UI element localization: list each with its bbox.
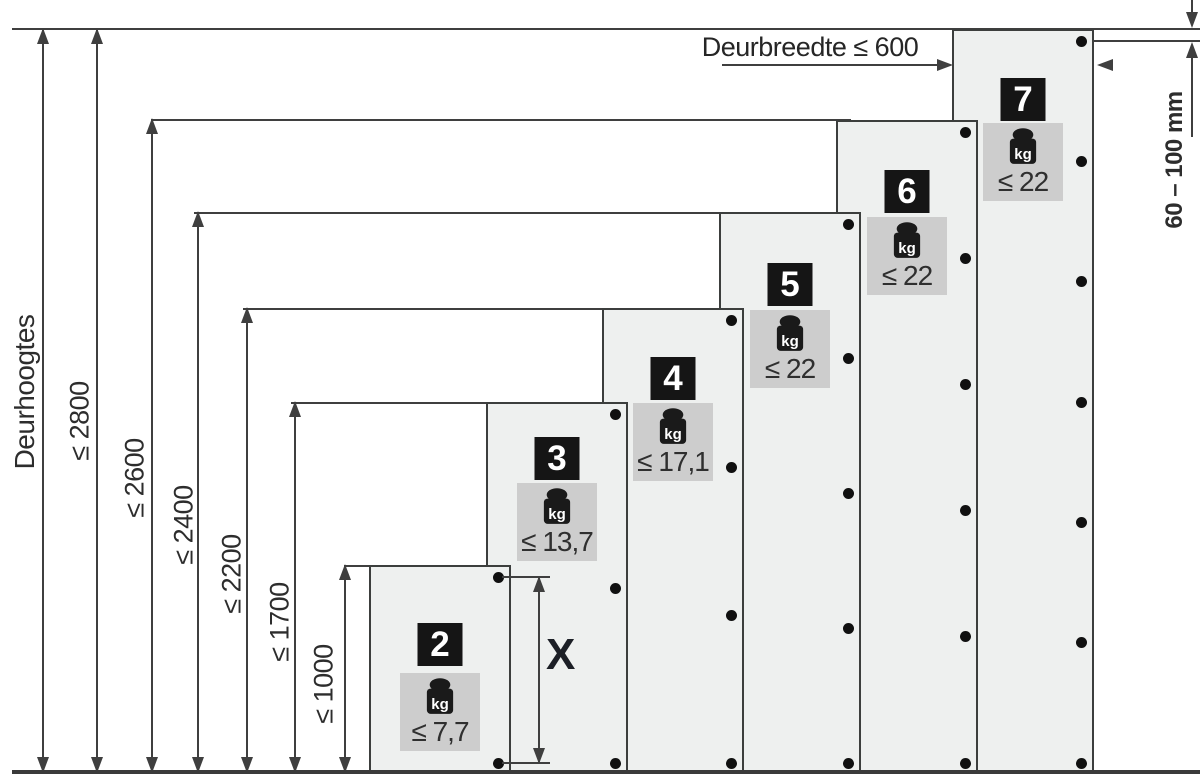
hinge-count-diagram: 2 kg ≤ 7,7 3 kg ≤ 13,7 4 kg: [0, 0, 1200, 778]
kg-weight-icon: kg: [1008, 128, 1038, 166]
hinge-dot: [1076, 276, 1087, 287]
ref-line-height-2600: [151, 119, 851, 121]
ref-line-height-2200: [243, 308, 663, 310]
weight-limit-box: kg ≤ 7,7: [400, 673, 480, 751]
hinge-dot: [726, 610, 737, 621]
door-number-plate: 4: [651, 357, 696, 400]
hinge-dot: [1076, 156, 1087, 167]
hinge-dot: [960, 758, 971, 769]
hinge-dot: [726, 758, 737, 769]
hinge-offset-dim-line-lower: [1191, 58, 1193, 137]
weight-limit-value: ≤ 22: [765, 355, 815, 383]
kg-weight-icon: kg: [775, 315, 805, 353]
door-number-plate: 3: [535, 437, 580, 480]
dim-line-deurhoogtes: [42, 29, 44, 772]
door-number-plate: 6: [885, 170, 930, 213]
weight-limit-box: kg ≤ 22: [983, 123, 1063, 201]
hinge-dot: [960, 379, 971, 390]
dim-line-2600: [151, 119, 153, 772]
height-label-2400: ≤ 2400: [169, 485, 200, 564]
hinge-dot: [726, 462, 737, 473]
weight-limit-box: kg ≤ 22: [750, 310, 830, 388]
hinge-offset-arrow-up-icon: [1186, 42, 1198, 58]
hinge-dot: [726, 315, 737, 326]
door-width-arrow-right-icon: [937, 59, 953, 71]
hinge-dot: [960, 253, 971, 264]
kg-unit-label: kg: [898, 240, 916, 257]
height-label-2200: ≤ 2200: [217, 534, 248, 613]
door-width-dim-line: [722, 64, 940, 66]
height-label-2800: ≤ 2800: [65, 381, 96, 460]
hinge-dot: [1076, 517, 1087, 528]
weight-limit-value: ≤ 13,7: [521, 528, 593, 556]
hinge-dot: [1076, 36, 1087, 47]
hinge-dot: [610, 758, 621, 769]
door-number-plate: 7: [1001, 78, 1046, 121]
height-label-1000: ≤ 1000: [309, 644, 340, 723]
hinge-dot: [1076, 758, 1087, 769]
dim-line-1000: [344, 565, 346, 772]
kg-weight-icon: kg: [425, 678, 455, 716]
hinge-dot: [960, 505, 971, 516]
hinge-offset-arrow-down-icon: [1186, 12, 1198, 28]
height-label-2600: ≤ 2600: [120, 438, 151, 517]
floor-baseline: [12, 770, 1200, 774]
hinge-dot: [1076, 397, 1087, 408]
hinge-dot: [843, 758, 854, 769]
height-label-1700: ≤ 1700: [265, 582, 296, 661]
kg-unit-label: kg: [664, 426, 682, 443]
hinge-offset-ref-line: [1093, 40, 1200, 42]
hinge-dot: [960, 127, 971, 138]
kg-weight-icon: kg: [658, 408, 688, 446]
kg-unit-label: kg: [431, 696, 449, 713]
hinge-offset-label: 60 – 100 mm: [1161, 91, 1189, 228]
hinge-spacing-label: X: [546, 633, 575, 677]
door-number-plate: 5: [768, 263, 813, 306]
hinge-dot: [610, 583, 621, 594]
hinge-dot: [610, 409, 621, 420]
weight-limit-value: ≤ 22: [882, 262, 932, 290]
weight-limit-value: ≤ 17,1: [637, 448, 709, 476]
hinge-dot: [843, 623, 854, 634]
hinge-dot: [960, 631, 971, 642]
hinge-dot: [843, 488, 854, 499]
hinge-dot: [843, 353, 854, 364]
hinge-spacing-dim-line: [538, 577, 540, 763]
ref-line-height-2400: [194, 212, 774, 214]
weight-limit-value: ≤ 22: [998, 168, 1048, 196]
kg-weight-icon: kg: [892, 222, 922, 260]
kg-weight-icon: kg: [542, 488, 572, 526]
kg-unit-label: kg: [548, 506, 566, 523]
axis-title-deurhoogtes: Deurhoogtes: [9, 315, 41, 470]
door-number-plate: 2: [418, 623, 463, 666]
door-panel-2: 2 kg ≤ 7,7: [369, 565, 511, 772]
weight-limit-box: kg ≤ 13,7: [517, 483, 597, 561]
door-width-arrow-left-icon: [1097, 59, 1113, 71]
hinge-dot: [843, 219, 854, 230]
hinge-dot: [1076, 637, 1087, 648]
dim-line-2800: [96, 29, 98, 772]
door-width-dim-label: Deurbreedte ≤ 600: [690, 32, 930, 63]
weight-limit-box: kg ≤ 17,1: [633, 403, 713, 481]
kg-unit-label: kg: [1014, 146, 1032, 163]
weight-limit-box: kg ≤ 22: [867, 217, 947, 295]
kg-unit-label: kg: [781, 333, 799, 350]
weight-limit-value: ≤ 7,7: [411, 718, 468, 746]
